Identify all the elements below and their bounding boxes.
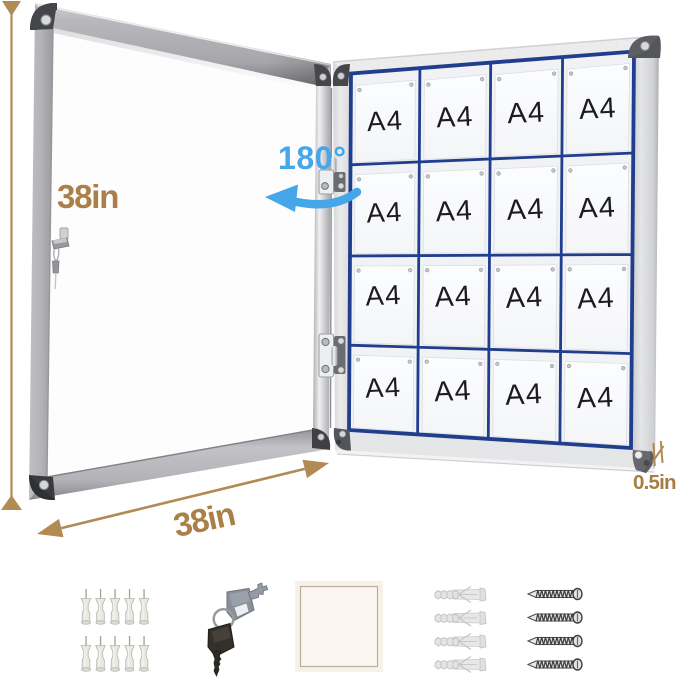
svg-text:38in: 38in [57, 178, 118, 215]
svg-text:A4: A4 [506, 193, 546, 227]
svg-text:A4: A4 [434, 280, 473, 314]
svg-text:A4: A4 [576, 282, 615, 316]
svg-text:38in: 38in [170, 495, 238, 544]
svg-text:A4: A4 [578, 92, 618, 126]
svg-text:A4: A4 [576, 381, 615, 415]
svg-text:A4: A4 [364, 371, 402, 404]
svg-text:0.5in: 0.5in [633, 471, 676, 494]
svg-text:A4: A4 [366, 104, 404, 137]
svg-text:A4: A4 [435, 100, 474, 134]
svg-text:A4: A4 [504, 378, 544, 412]
svg-text:A4: A4 [365, 279, 403, 312]
svg-text:A4: A4 [577, 191, 617, 225]
svg-text:A4: A4 [505, 281, 545, 315]
svg-text:180°: 180° [278, 140, 347, 176]
svg-text:A4: A4 [366, 196, 404, 229]
svg-text:A4: A4 [435, 194, 474, 228]
svg-text:A4: A4 [433, 374, 472, 408]
svg-text:A4: A4 [506, 96, 546, 130]
